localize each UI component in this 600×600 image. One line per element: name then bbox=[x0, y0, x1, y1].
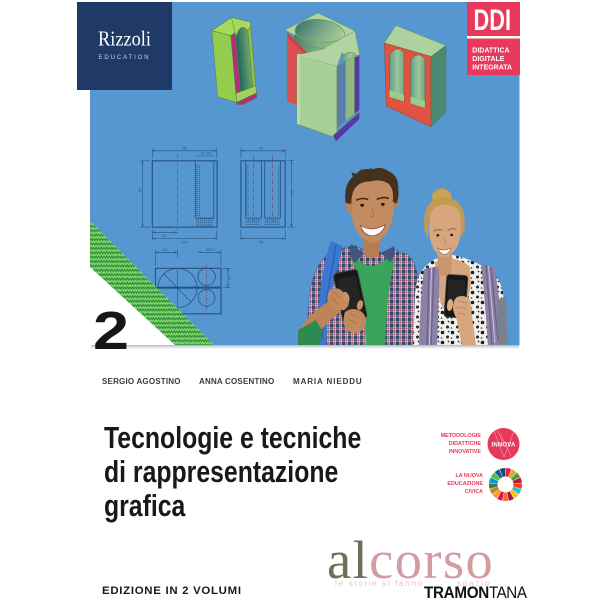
svg-text:100: 100 bbox=[181, 240, 188, 245]
svg-text:75: 75 bbox=[290, 190, 295, 195]
svg-text:45: 45 bbox=[259, 240, 264, 245]
svg-text:DIDATTICA: DIDATTICA bbox=[472, 48, 509, 55]
svg-text:40: 40 bbox=[163, 247, 168, 252]
svg-text:EDUCATION: EDUCATION bbox=[99, 55, 151, 61]
svg-text:98: 98 bbox=[182, 146, 187, 151]
svg-text:Ø17: Ø17 bbox=[206, 247, 214, 252]
svg-text:EDUCAZIONE: EDUCAZIONE bbox=[447, 481, 483, 487]
svg-text:DIDATTICHE: DIDATTICHE bbox=[449, 441, 482, 447]
svg-text:45: 45 bbox=[162, 233, 167, 238]
svg-text:INNOVATIVE: INNOVATIVE bbox=[449, 449, 482, 455]
svg-text:DIGITALE: DIGITALE bbox=[472, 56, 504, 63]
svg-text:Rizzoli: Rizzoli bbox=[98, 27, 151, 51]
svg-text:INTEGRATA: INTEGRATA bbox=[472, 65, 512, 72]
svg-text:28: 28 bbox=[227, 275, 232, 280]
svg-text:42: 42 bbox=[259, 146, 264, 151]
svg-text:21,25: 21,25 bbox=[201, 151, 212, 156]
svg-text:DDI: DDI bbox=[474, 5, 512, 37]
svg-text:INNOVA: INNOVA bbox=[491, 443, 516, 449]
svg-text:METODOLOGIE: METODOLOGIE bbox=[441, 433, 482, 439]
svg-text:90: 90 bbox=[137, 187, 142, 192]
svg-text:CIVICA: CIVICA bbox=[465, 489, 483, 495]
svg-text:LA NUOVA: LA NUOVA bbox=[455, 473, 483, 479]
svg-text:2: 2 bbox=[93, 300, 129, 361]
